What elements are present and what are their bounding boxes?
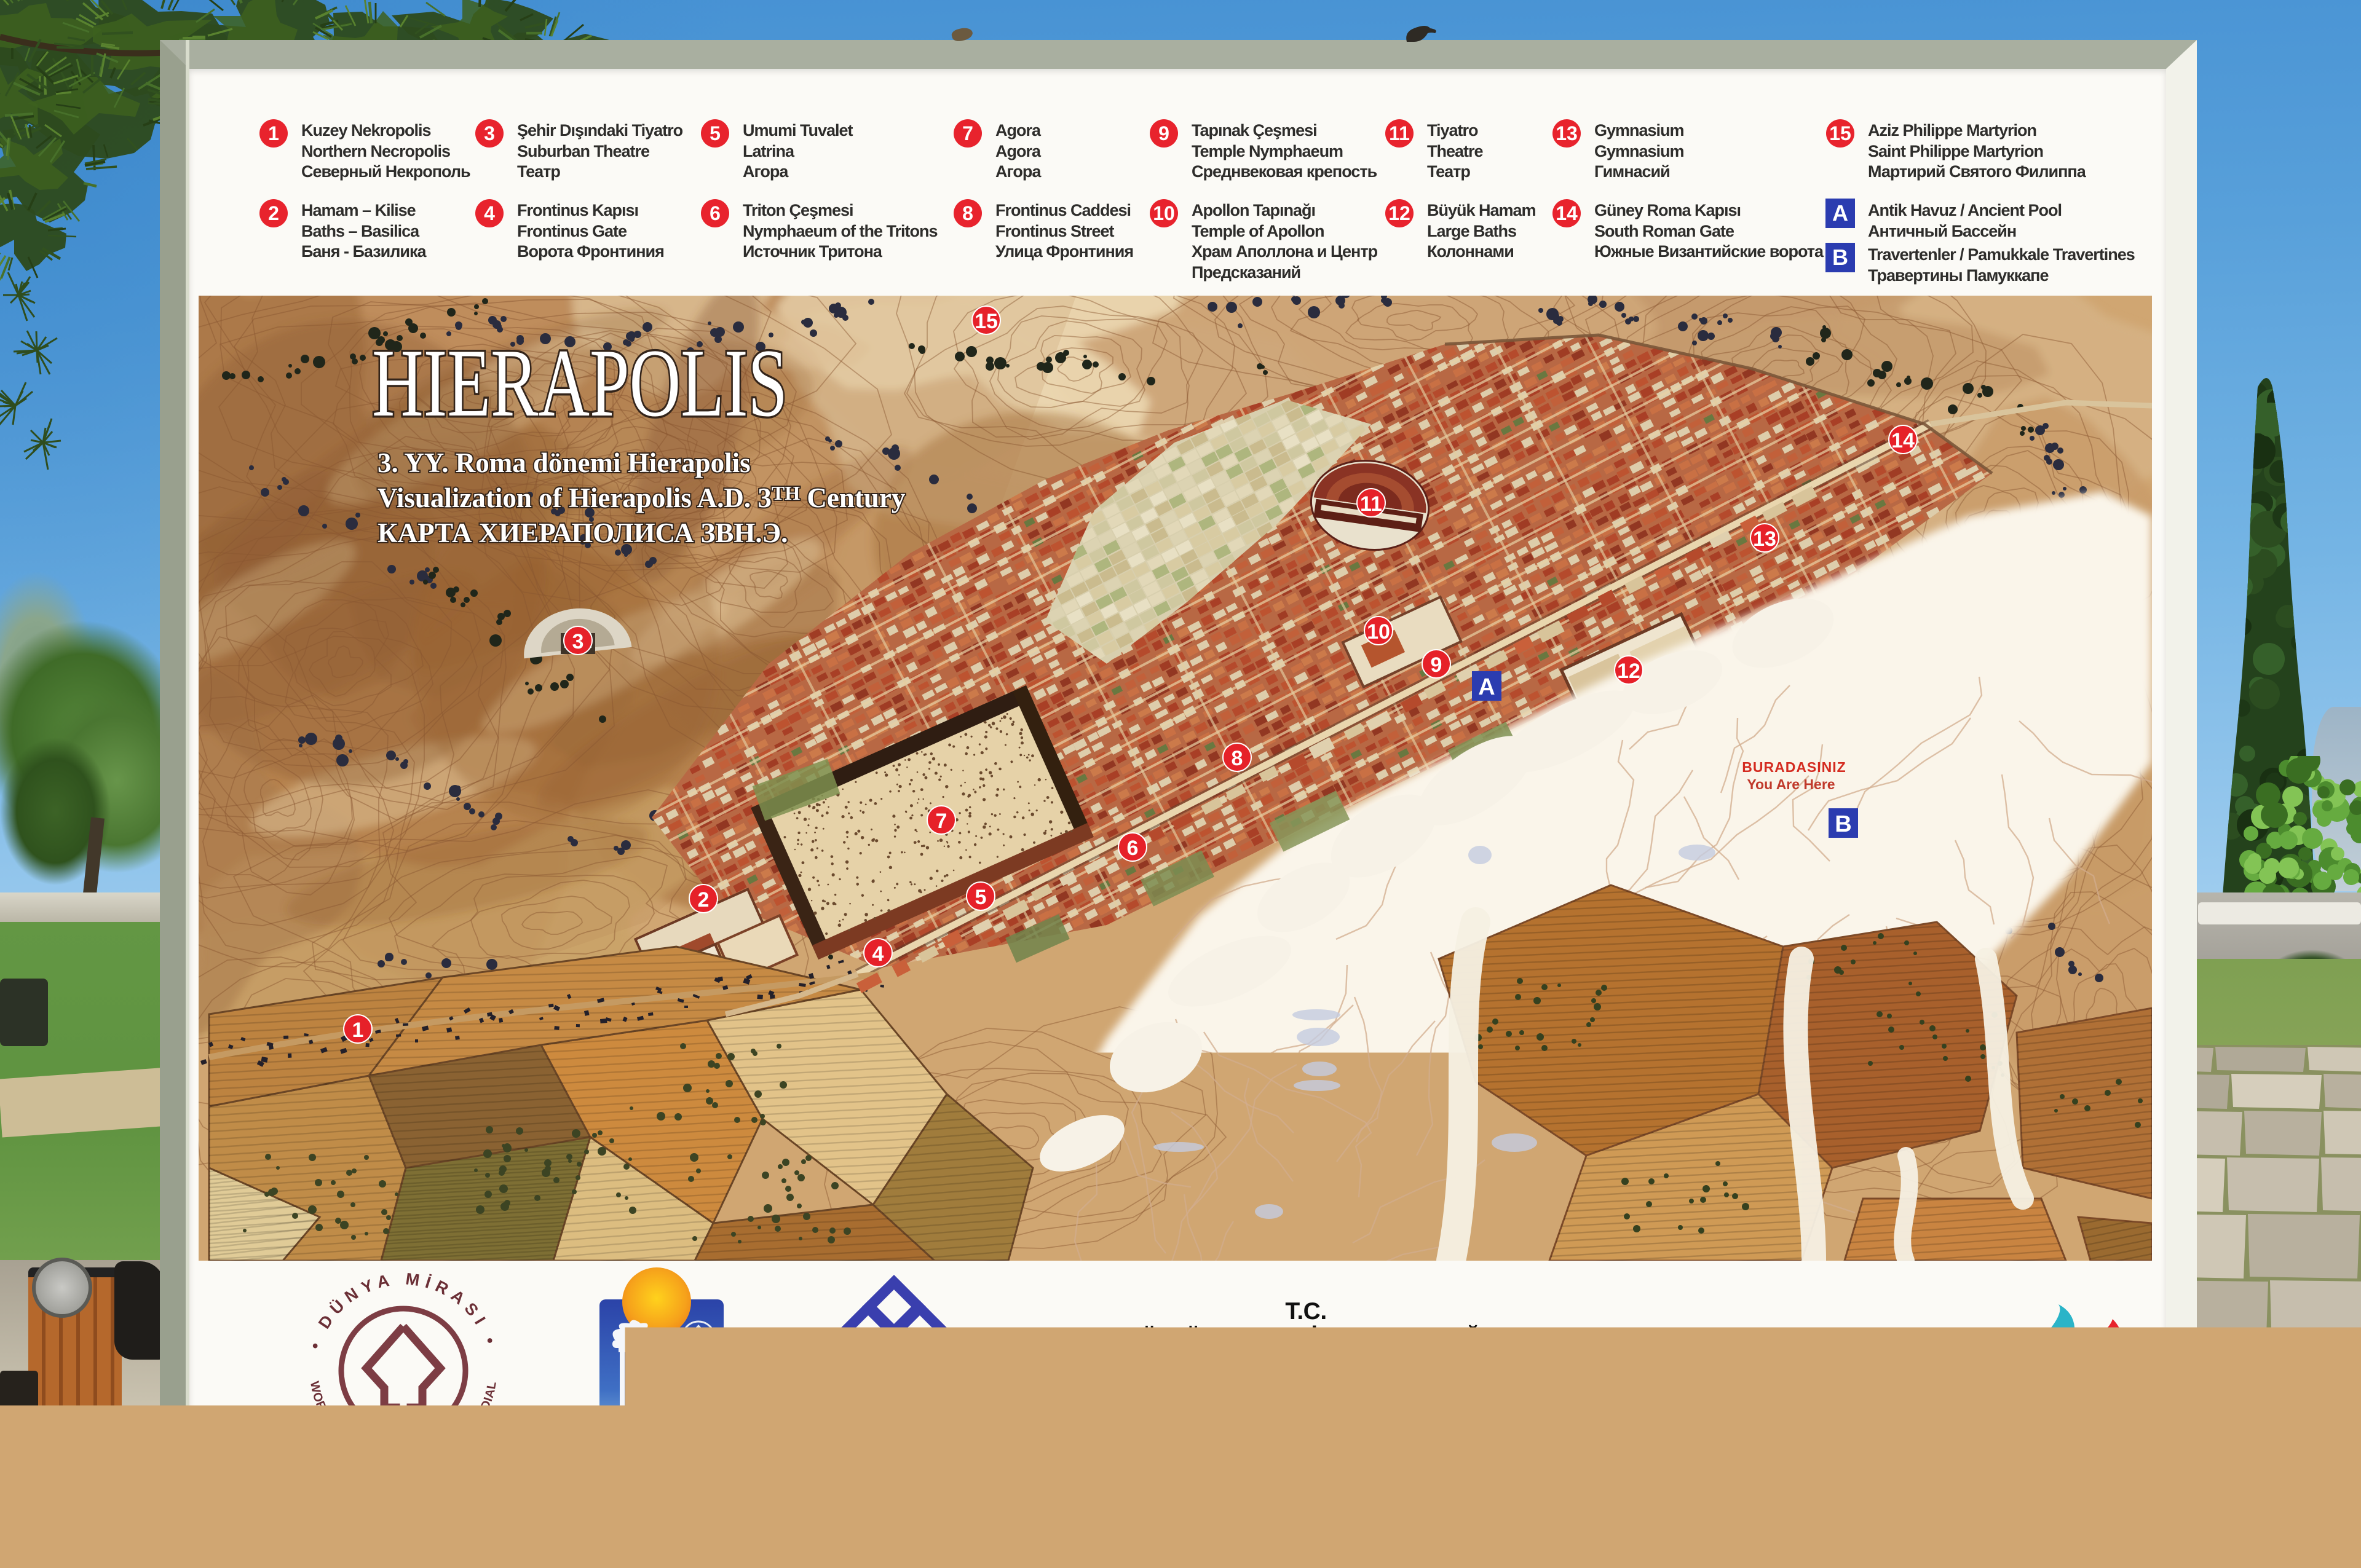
svg-text:WORLD HERITAGE • PATRIMOINE MO: WORLD HERITAGE • PATRIMOINE MONDIAL [307,1380,499,1467]
svg-text:Visualization of Hierapolis A.: Visualization of Hierapolis A.D. 3TH Cen… [378,482,906,513]
svg-text:4: 4 [872,942,884,966]
svg-text:1: 1 [352,1018,364,1042]
svg-text:Pamukkale: Pamukkale [590,1428,756,1468]
svg-text:B: B [1835,811,1851,837]
svg-text:КАРТА ХИЕРАПОЛИСА ЗВН.Э.: КАРТА ХИЕРАПОЛИСА ЗВН.Э. [378,518,788,548]
svg-text:10: 10 [1367,620,1390,644]
svg-text:9: 9 [1431,653,1442,677]
svg-text:3. YY. Roma dönemi Hierapolis: 3. YY. Roma dönemi Hierapolis [378,447,751,478]
svg-text:6: 6 [1127,837,1139,860]
svg-text:BURADASINIZ: BURADASINIZ [1742,759,1846,775]
svg-text:Türkiye: Türkiye [1951,1381,2189,1465]
svg-text:2: 2 [698,888,710,912]
svg-text:14: 14 [1891,429,1915,452]
svg-text:12: 12 [1617,660,1640,683]
svg-text:8: 8 [1232,747,1243,770]
svg-text:You Are Here: You Are Here [1747,776,1835,792]
svg-text:15: 15 [975,310,998,333]
svg-text:7: 7 [936,810,947,833]
svg-text:DENİZLİ VALİLİĞİ: DENİZLİ VALİLİĞİ [1531,1365,1628,1378]
svg-text:5: 5 [975,886,987,909]
svg-text:3: 3 [572,630,584,653]
svg-text:HIERAPOLIS: HIERAPOLIS [372,329,788,437]
svg-text:11: 11 [1360,492,1382,516]
svg-text:A: A [1478,674,1495,700]
svg-text:13: 13 [1753,527,1776,551]
